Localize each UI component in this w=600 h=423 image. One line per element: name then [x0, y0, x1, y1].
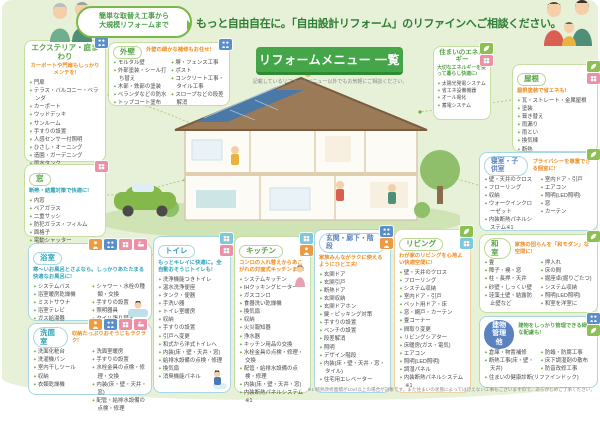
bullet-icon: ✦	[540, 268, 544, 273]
bullet-icon: ✦	[92, 308, 96, 313]
menu-item: ✦蓄電システム	[437, 103, 487, 110]
bullet-icon: ✦	[171, 92, 175, 97]
header-bubble: 簡単な取替え工事から 大規模リフォームまで	[76, 6, 192, 38]
bullet-icon: ✦	[158, 350, 162, 355]
menu-item: ✦ガスコンロ	[239, 292, 306, 300]
bath-icon	[134, 319, 147, 330]
bullet-icon: ✦	[113, 84, 117, 89]
bullet-icon: ✦	[540, 260, 544, 265]
menu-item: ✦トイレ室暖房	[158, 308, 226, 316]
section-catch-energy: 大切なエネルギーを使って暮らし快適に!	[437, 66, 487, 79]
section-title-tatemono: 建物 管理他	[484, 320, 514, 349]
bullet-icon: ✦	[437, 95, 441, 100]
menu-item: ✦内装(床・壁・天井・窓)	[158, 349, 226, 357]
menu-item: ✦ウォークインクローゼット	[484, 200, 537, 216]
menu-item: ✦段差解消	[319, 335, 386, 343]
bullet-icon: ✦	[319, 312, 323, 317]
section-catch-gaiheki: 外壁の細かな補修もお任せ!	[146, 47, 211, 54]
bullet-icon: ✦	[517, 114, 521, 119]
menu-item: ✦障子・襖・窓	[484, 267, 537, 275]
section-items-living: ✦壁・天井のクロス✦フローリング✦システム収納✦室内ドア・引戸✦ペット用ドア・床…	[399, 269, 466, 391]
bullet-icon: ✦	[92, 365, 96, 370]
bullet-icon: ✦	[239, 382, 243, 387]
menu-item: ✦水栓金具の点検・修理・交換	[92, 364, 148, 380]
bullet-icon: ✦	[171, 76, 175, 81]
section-card-yokushitsu: 浴室 寒〜いお風呂とさよなら。しっかりあたたまる快適なお風呂に! ✦システムバス…	[28, 243, 152, 321]
bullet-icon: ✦	[517, 98, 521, 103]
section-items-toilet: ✦洗浄機能つきトイレ✦温水洗浄便座✦タンク・便器✦手洗い器✦トイレ室暖房✦収納✦…	[158, 276, 226, 381]
menu-item: ✦面格子	[29, 229, 101, 237]
bullet-icon: ✦	[29, 137, 33, 142]
menu-item: ✦掘座卓(掘りごたつ)	[540, 275, 593, 283]
leaf-icon	[587, 61, 600, 72]
bullet-icon: ✦	[319, 296, 323, 301]
bullet-icon: ✦	[399, 310, 403, 315]
menu-item: ✦内窓	[29, 197, 101, 205]
section-card-energy: 住まいのエネルギー 大切なエネルギーを使って暮らし快適に! ✦太陽光発電システム…	[433, 46, 491, 120]
bullet-icon: ✦	[319, 361, 323, 366]
bullet-icon: ✦	[239, 293, 243, 298]
bullet-icon: ✦	[239, 334, 243, 339]
section-catch-shinshitsu: プライバシーを尊重できる個室に!	[532, 159, 593, 173]
section-title-exterior: エクステリア・庭まわり	[29, 44, 101, 61]
bullet-icon: ✦	[399, 278, 403, 283]
menu-item: ✦室内干しツール	[33, 364, 89, 372]
leaf-icon	[587, 149, 600, 160]
bullet-icon: ✦	[33, 292, 37, 297]
menu-item: ✦畳	[484, 259, 537, 267]
section-card-washitsu: 和室 家族の団らんを「和モダン」な空間に! ✦畳✦障子・襖・窓✦柱・長押・天井✦…	[479, 234, 598, 313]
bullet-icon: ✦	[171, 68, 175, 73]
section-catch-toilet: もっとキレイに快適に。全自動おそうじトイレも!	[158, 260, 226, 274]
section-card-exterior: エクステリア・庭まわり カーポートや門扉もしっかりメンテを! ✦門扉✦テラス・バ…	[24, 40, 106, 162]
menu-item: ✦食器洗い乾燥機	[239, 300, 306, 308]
menu-item: ✦配管・給排水設備の点検・修理	[92, 397, 148, 413]
bullet-icon: ✦	[33, 374, 37, 379]
menu-item: ✦換気扇	[239, 308, 306, 316]
menu-item: ✦キッチン用品の交換	[239, 341, 306, 349]
menu-item: ✦ペアガラス	[29, 205, 101, 213]
menu-item: ✦テラス・バルコニー・ベランダ	[29, 87, 101, 103]
menu-item: ✦洗面化粧台	[33, 348, 89, 356]
bullet-icon: ✦	[540, 209, 544, 214]
bullet-icon: ✦	[484, 350, 488, 355]
bullet-icon: ✦	[484, 201, 488, 206]
bullet-icon: ✦	[399, 318, 403, 323]
section-title-genkan: 玄関・廊下・階段	[319, 233, 386, 253]
section-card-toilet: トイレ もっとキレイに快適に。全自動おそうじトイレも! ✦洗浄機能つきトイレ✦温…	[153, 236, 231, 393]
bathing-person-illustration	[127, 300, 149, 318]
bullet-icon: ✦	[540, 193, 544, 198]
bullet-icon: ✦	[92, 349, 96, 354]
section-catch-exterior: カーポートや門扉もしっかりメンテを!	[29, 63, 101, 77]
section-title-senmen: 洗面室	[33, 327, 68, 348]
menu-item: ✦内装(床・壁・天井・窓・タイル)	[319, 360, 386, 376]
menu-item: ✦砂壁・しっくい壁	[484, 284, 537, 292]
box-icon	[480, 55, 493, 66]
menu-item: ✦フローリング	[484, 184, 537, 192]
menu-item: ✦押入れ	[540, 259, 593, 267]
bullet-icon: ✦	[484, 260, 488, 265]
person-icon	[89, 319, 102, 330]
bullet-icon: ✦	[33, 365, 37, 370]
menu-item: ✦人感センサー付照明	[29, 136, 101, 144]
menu-item: ✦ペット用ドア・床	[399, 301, 466, 309]
menu-item: ✦コンクリート工事・タイル工事	[171, 75, 226, 91]
bullet-icon: ✦	[319, 272, 323, 277]
bullet-icon: ✦	[158, 285, 162, 290]
family-icon	[104, 239, 117, 250]
section-items-shinshitsu: ✦壁・天井のクロス✦フローリング✦収納✦ウォークインクローゼット✦内装断熱パネル…	[484, 176, 537, 233]
box-icon	[460, 238, 473, 249]
menu-item: ✦塀・フェンス工事	[171, 59, 226, 67]
menu-item: ✦タンク・便器	[158, 292, 226, 300]
menu-item: ✦塗装	[517, 105, 593, 113]
menu-item: ✦水栓金具の点検・修理・交換	[239, 349, 306, 365]
bullet-icon: ✦	[92, 300, 96, 305]
bullet-icon: ✦	[399, 327, 403, 332]
menu-item: ✦手すりの設置	[319, 319, 386, 327]
menu-item: ✦照明(LED照明)	[540, 192, 593, 200]
bullet-icon: ✦	[239, 390, 243, 395]
menu-item: ✦内装断熱パネルシステム※1	[484, 216, 537, 232]
menu-item: ✦配管・給排水設備の点検・修理	[239, 365, 306, 381]
section-title-washitsu: 和室	[484, 238, 511, 259]
menu-item: ✦玄関収納	[319, 295, 386, 303]
menu-item: ✦火災報知器	[239, 324, 306, 332]
section-catch-mado: 断熱・結露対策で快適に!	[29, 188, 101, 195]
bullet-icon: ✦	[319, 304, 323, 309]
menu-item: ✦内装(床・壁・天井・窓)	[239, 381, 306, 389]
bullet-icon: ✦	[29, 88, 33, 93]
bullet-icon: ✦	[484, 293, 488, 298]
section-catch-living: わが家のリビングを心地よい快適空間に!	[399, 253, 466, 267]
bullet-icon: ✦	[29, 230, 33, 235]
bullet-icon: ✦	[540, 366, 544, 371]
section-title-mado: 窓	[29, 173, 51, 186]
section-items-washitsu: ✦畳✦障子・襖・窓✦柱・長押・天井✦砂壁・しっくい壁✦珪藻土壁・結露防止壁など	[484, 259, 537, 308]
bullet-icon: ✦	[517, 122, 521, 127]
bullet-icon: ✦	[484, 217, 488, 222]
bullet-icon: ✦	[517, 147, 521, 152]
bullet-icon: ✦	[399, 294, 403, 299]
bullet-icon: ✦	[437, 88, 441, 93]
bullet-icon: ✦	[239, 277, 243, 282]
leaf-icon	[587, 231, 600, 242]
bullet-icon: ✦	[517, 138, 521, 143]
section-title-living: リビング	[399, 238, 443, 251]
section-title-yane: 屋根	[517, 73, 546, 86]
menu-item: ✦デザイン階段	[319, 352, 386, 360]
box-icon	[587, 73, 600, 84]
menu-item: ✦換気棟	[517, 137, 593, 145]
menu-item: ✦壁・天井のクロス	[484, 176, 537, 184]
bubble-text-2: 大規模リフォームまで	[99, 22, 169, 31]
bullet-icon: ✦	[29, 206, 33, 211]
section-card-tatemono: 建物 管理他 建物をしっかり管理できる細かな配慮も! ✦倉庫・物置補修✦断熱工事…	[479, 316, 598, 388]
bullet-icon: ✦	[92, 357, 96, 362]
section-catch-yane: 屋根塗装で省エネも!	[517, 88, 593, 95]
bullet-icon: ✦	[540, 276, 544, 281]
bullet-icon: ✦	[239, 342, 243, 347]
menu-item: ✦外部塗装・シール打ち替え	[113, 67, 168, 83]
leaf-icon	[460, 226, 473, 237]
menu-item: ✦住宅用エレベーター	[319, 376, 386, 384]
menu-item: ✦浄水器	[239, 333, 306, 341]
menu-item: ✦洗面室暖房	[92, 348, 148, 356]
bullet-icon: ✦	[484, 177, 488, 182]
bullet-icon: ✦	[399, 359, 403, 364]
bullet-icon: ✦	[239, 301, 243, 306]
bullet-icon: ✦	[33, 382, 37, 387]
bullet-icon: ✦	[484, 285, 488, 290]
bullet-icon: ✦	[540, 301, 544, 306]
section-title-shinshitsu: 寝室・子供室	[484, 156, 528, 176]
bullet-icon: ✦	[92, 284, 96, 289]
menu-item: ✦収納	[33, 373, 89, 381]
section-catch-washitsu: 家族の団らんを「和モダン」な空間に!	[515, 242, 593, 256]
menu-item: ✦畳コーナー	[399, 317, 466, 325]
bullet-icon: ✦	[484, 268, 488, 273]
bullet-icon: ✦	[319, 336, 323, 341]
box-icon	[95, 161, 108, 172]
menu-item: ✦カーポート	[29, 103, 101, 111]
menu-item: ✦門扉	[29, 79, 101, 87]
menu-item: ✦衣類乾燥機	[33, 381, 89, 389]
menu-item: ✦システム収納	[540, 284, 593, 292]
bullet-icon: ✦	[540, 293, 544, 298]
section-catch-senmen: 収納たっぷりおそうじもラクラク!	[72, 331, 147, 345]
menu-item: ✦室内ドア・引戸	[399, 293, 466, 301]
box-icon	[220, 245, 233, 256]
section-items2-shinshitsu: ✦室内ドア・引戸✦エアコン✦照明(LED照明)✦窓✦カーテン	[540, 176, 593, 233]
menu-item: ✦柱・長押・天井	[484, 275, 537, 283]
box-icon	[300, 233, 313, 244]
menu-item: ✦スロープなどの段差解消	[171, 91, 226, 107]
menu-item: ✦木部・鉄部の塗装	[113, 83, 168, 91]
menu-item: ✦調湿パネル	[399, 366, 466, 374]
section-items-kitchen: ✦システムキッチン✦IHクッキングヒーター✦ガスコンロ✦食器洗い乾燥機✦換気扇✦…	[239, 276, 306, 406]
menu-item: ✦手すりの設置	[92, 356, 148, 364]
bullet-icon: ✦	[319, 353, 323, 358]
bullet-icon: ✦	[29, 104, 33, 109]
section-card-genkan: 玄関・廊下・階段 家族みんながラクに使えるようにひと工夫! ✦玄関ドア✦玄関引戸…	[314, 229, 391, 393]
bullet-icon: ✦	[113, 68, 117, 73]
menu-item: ✦手洗い器	[158, 300, 226, 308]
menu-item: ✦収納	[484, 192, 537, 200]
menu-item: ✦洗浄機能つきトイレ	[158, 276, 226, 284]
menu-item: ✦引戸へ変更	[158, 333, 226, 341]
menu-item: ✦洗濯機パン	[33, 356, 89, 364]
footnote: ※1 断熱改修面積が10㎡以上の場合が対象です。また住まいの状態によっては行えな…	[300, 387, 595, 393]
menu-item: ✦ウッドデッキ	[29, 111, 101, 119]
bullet-icon: ✦	[399, 343, 403, 348]
menu-subtitle: 記載しているリフォームメニュー以外でもお気軽にご相談ください。	[230, 78, 430, 85]
bullet-icon: ✦	[33, 349, 37, 354]
bullet-icon: ✦	[29, 214, 33, 219]
bullet-icon: ✦	[158, 325, 162, 330]
section-card-kitchen: キッチン コンロの入れ替えからあこがれの対面式キッチンまで! ✦システムキッチン…	[234, 236, 311, 393]
bullet-icon: ✦	[239, 285, 243, 290]
menu-item: ✦玄関ドアホン	[319, 303, 386, 311]
menu-item: ✦玄関引戸	[319, 279, 386, 287]
bullet-icon: ✦	[540, 177, 544, 182]
menu-item: ✦雨漏り	[517, 121, 593, 129]
bullet-icon: ✦	[239, 350, 243, 355]
menu-item: ✦照明	[319, 344, 386, 352]
bullet-icon: ✦	[113, 60, 117, 65]
toilet-person-illustration	[208, 370, 228, 390]
bullet-icon: ✦	[158, 293, 162, 298]
section-items2-washitsu: ✦押入れ✦床の間✦掘座卓(掘りごたつ)✦システム収納✦照明(LED照明)✦和室を…	[540, 259, 593, 308]
menu-item: ✦和式から洋式トイレへ	[158, 341, 226, 349]
bullet-icon: ✦	[158, 317, 162, 322]
bullet-icon: ✦	[158, 366, 162, 371]
bullet-icon: ✦	[540, 185, 544, 190]
section-items-exterior: ✦門扉✦テラス・バルコニー・ベランダ✦カーポート✦ウッドデッキ✦サンルーム✦手す…	[29, 79, 101, 168]
section-card-shinshitsu: 寝室・子供室 プライバシーを尊重できる個室に! ✦壁・天井のクロス✦フローリング…	[479, 152, 598, 231]
menu-item: ✦モルタル壁	[113, 59, 168, 67]
bullet-icon: ✦	[33, 300, 37, 305]
menu-item: ✦壁・天井のクロス	[399, 269, 466, 277]
menu-item: ✦葺き替え	[517, 113, 593, 121]
section-catch-yokushitsu: 寒〜いお風呂とさよなら。しっかりあたたまる快適なお風呂に!	[33, 267, 147, 281]
bullet-icon: ✦	[239, 317, 243, 322]
family-icon	[219, 39, 232, 50]
person-icon	[89, 239, 102, 250]
menu-item: ✦瓦・ストレート・金属屋根	[517, 97, 593, 105]
menu-item: ✦トップコート塗布	[113, 99, 168, 107]
bullet-icon: ✦	[171, 60, 175, 65]
menu-item: ✦システム収納	[399, 285, 466, 293]
bullet-icon: ✦	[33, 284, 37, 289]
bullet-icon: ✦	[29, 112, 33, 117]
bullet-icon: ✦	[158, 358, 162, 363]
bullet-icon: ✦	[239, 366, 243, 371]
kitchen-person-illustration	[292, 265, 308, 287]
menu-item: ✦二重サッシ	[29, 213, 101, 221]
section-card-gaiheki: 外壁 外壁の細かな補修もお任せ! ✦モルタル壁✦外部塗装・シール打ち替え✦木部・…	[108, 42, 230, 106]
section-items-genkan: ✦玄関ドア✦玄関引戸✦断熱ドア✦玄関収納✦玄関ドアホン✦鍵・ピッキング対策✦手す…	[319, 271, 386, 385]
bullet-icon: ✦	[29, 145, 33, 150]
section-extra-tatemono: ✦住まいの健康診断(リファインドック)	[484, 374, 593, 382]
menu-item: ✦床の間	[540, 267, 593, 275]
bullet-icon: ✦	[540, 350, 544, 355]
menu-item: ✦造園・ガーデニング	[29, 152, 101, 160]
section-title-yokushitsu: 浴室	[33, 252, 62, 265]
bullet-icon: ✦	[92, 382, 96, 387]
bullet-icon: ✦	[29, 153, 33, 158]
bullet-icon: ✦	[92, 398, 96, 403]
menu-item: ✦玄関ドア	[319, 271, 386, 279]
section-items2-gaiheki: ✦塀・フェンス工事✦ポスト✦コンクリート工事・タイル工事✦スロープなどの段差解消	[171, 59, 226, 108]
menu-item: ✦ベランダなどの防水	[113, 91, 168, 99]
menu-item: ✦照明(LED照明)	[399, 358, 466, 366]
bullet-icon: ✦	[540, 285, 544, 290]
bullet-icon: ✦	[437, 103, 441, 108]
menu-item: ✦ポスト	[171, 67, 226, 75]
section-catch-genkan: 家族みんながラクに使えるようにひと工夫!	[319, 255, 386, 269]
bubble-text-1: 簡単な取替え工事から	[99, 13, 169, 22]
family-icon	[104, 319, 117, 330]
section-card-senmen: 洗面室 収納たっぷりおそうじもラクラク! ✦洗面化粧台✦洗濯機パン✦室内干しツー…	[28, 323, 152, 395]
menu-item: ✦倉庫・物置補修	[484, 349, 537, 357]
bullet-icon: ✦	[484, 375, 488, 380]
menu-item: ✦収納	[158, 316, 226, 324]
bullet-icon: ✦	[540, 201, 544, 206]
bullet-icon: ✦	[29, 222, 33, 227]
menu-item: ✦ひさし・オーニング	[29, 144, 101, 152]
menu-item: ✦浴室テレビ	[33, 307, 89, 315]
section-items-tatemono: ✦倉庫・物置補修✦断熱工事(床・壁・天井)	[484, 349, 537, 373]
menu-item: ✦床暖房(ガス・電気)	[399, 342, 466, 350]
menu-item: ✦珪藻土壁・結露防止壁など	[484, 292, 537, 308]
bullet-icon: ✦	[158, 309, 162, 314]
header-headline: もっと自由自在に。「自由設計リフォーム」のリファインへご相談ください。	[196, 15, 561, 31]
bullet-icon: ✦	[517, 106, 521, 111]
leaf-icon	[480, 43, 493, 54]
menu-item: ✦給排水設備の点検・修理	[158, 357, 226, 365]
menu-item: ✦浴室暖房乾燥機	[33, 291, 89, 299]
bullet-icon: ✦	[158, 342, 162, 347]
menu-title: リフォームメニュー 一覧	[256, 47, 403, 75]
bath-icon	[134, 239, 147, 250]
family-icon	[380, 226, 393, 237]
bullet-icon: ✦	[399, 351, 403, 356]
bullet-icon: ✦	[319, 377, 323, 382]
bullet-icon: ✦	[319, 320, 323, 325]
menu-item: ✦雨とい	[517, 129, 593, 137]
menu-item: ✦防蟻・防腐工事	[540, 349, 593, 357]
bullet-icon: ✦	[319, 345, 323, 350]
section-items-senmen: ✦洗面化粧台✦洗濯機パン✦室内干しツール✦収納✦衣類乾燥機	[33, 348, 89, 413]
menu-item: ✦防犯ガラス・フィルム	[29, 221, 101, 229]
menu-item: ✦手すりの設置	[29, 128, 101, 136]
bullet-icon: ✦	[29, 121, 33, 126]
bullet-icon: ✦	[484, 193, 488, 198]
bullet-icon: ✦	[484, 276, 488, 281]
bullet-icon: ✦	[319, 328, 323, 333]
menu-item: ✦室内ドア・引戸	[540, 176, 593, 184]
menu-item: ✦太陽光発電システム	[437, 81, 487, 88]
menu-item: ✦エアコン	[399, 350, 466, 358]
person-icon	[300, 245, 313, 256]
bullet-icon: ✦	[319, 280, 323, 285]
menu-item: ✦温水洗浄便座	[158, 284, 226, 292]
bullet-icon: ✦	[239, 325, 243, 330]
section-items-gaiheki: ✦モルタル壁✦外部塗装・シール打ち替え✦木部・鉄部の塗装✦ベランダなどの防水✦ト…	[113, 59, 168, 108]
bullet-icon: ✦	[540, 358, 544, 363]
menu-item: ✦鍵・ピッキング対策	[319, 311, 386, 319]
menu-item: ✦防音改修工事	[540, 365, 593, 373]
bullet-icon: ✦	[399, 270, 403, 275]
menu-item: ✦オール電化	[437, 95, 487, 102]
bullet-icon: ✦	[484, 358, 488, 363]
bullet-icon: ✦	[158, 301, 162, 306]
section-title-toilet: トイレ	[158, 245, 195, 258]
bullet-icon: ✦	[399, 375, 403, 380]
menu-item: ✦カーテン	[540, 208, 593, 216]
bullet-icon: ✦	[239, 309, 243, 314]
bullet-icon: ✦	[399, 367, 403, 372]
menu-item: ✦断熱工事(床・壁・天井)	[484, 357, 537, 373]
section-card-yane: 屋根 屋根塗装で省エネも! ✦瓦・ストレート・金属屋根✦塗装✦葺き替え✦雨漏り✦…	[512, 64, 598, 152]
box-icon	[119, 239, 132, 250]
menu-item: ✦システムバス	[33, 283, 89, 291]
menu-item: ✦サンルーム	[29, 120, 101, 128]
section-title-gaiheki: 外壁	[113, 46, 142, 59]
menu-item: ✦リビングシアター	[399, 334, 466, 342]
